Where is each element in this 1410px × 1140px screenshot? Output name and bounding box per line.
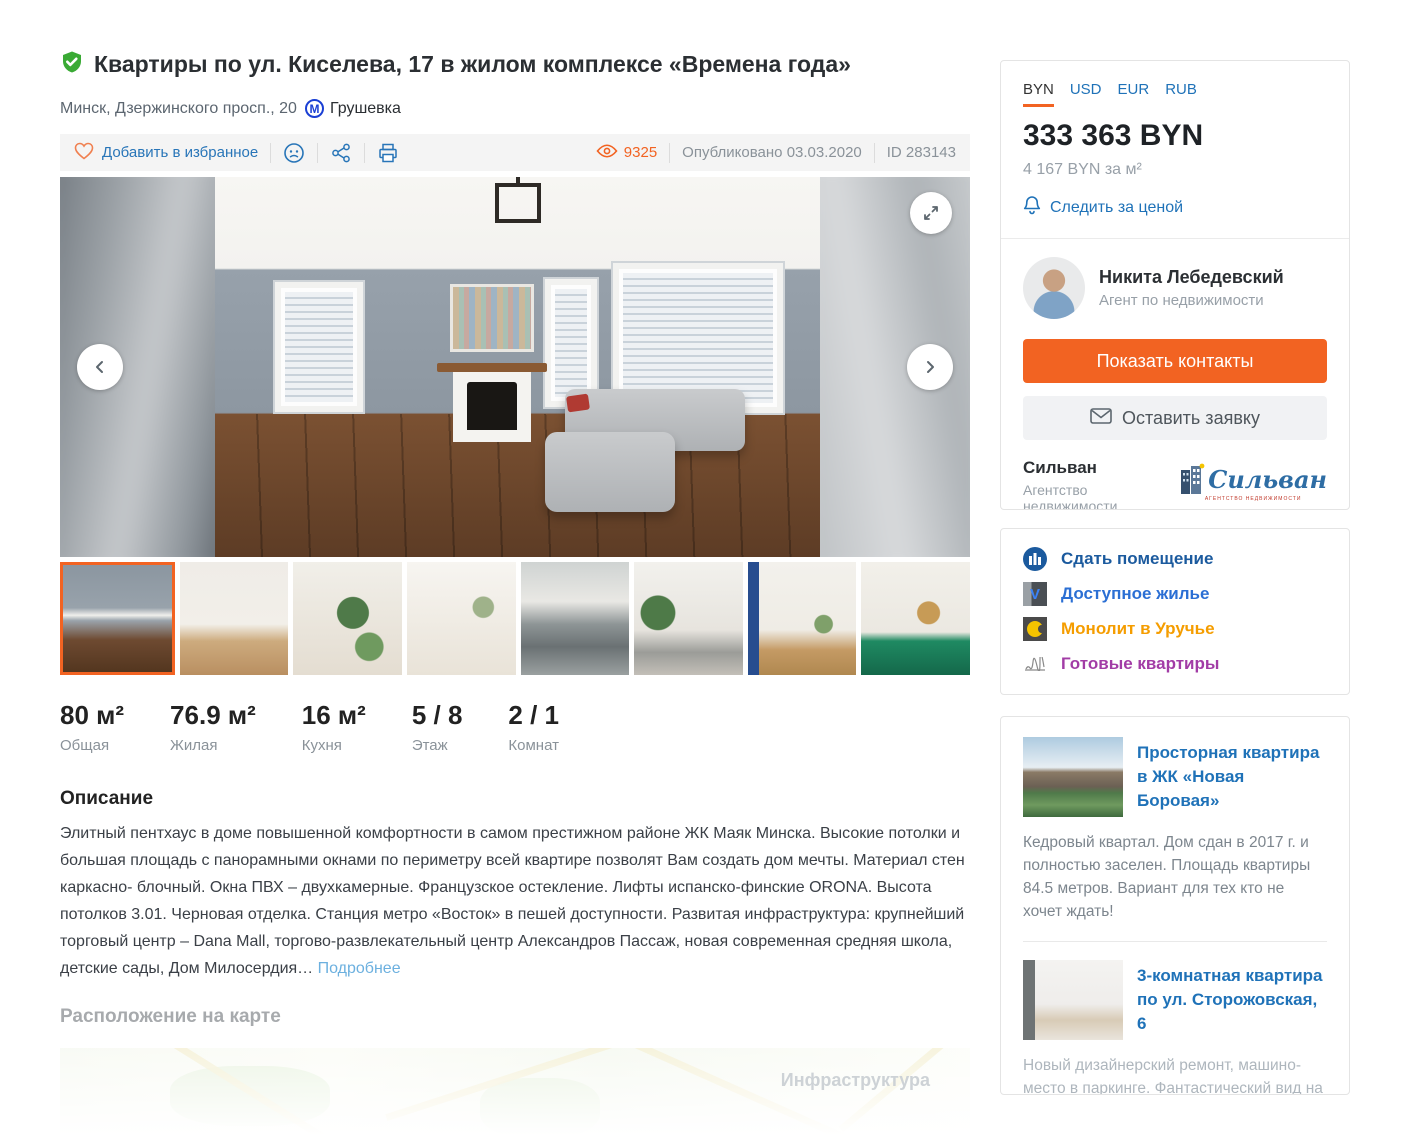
currency-tab-rub[interactable]: RUB — [1165, 81, 1197, 107]
print-button[interactable] — [377, 142, 399, 164]
agency-type: Агентство недвижимости — [1023, 482, 1179, 510]
listing-id: ID 283143 — [887, 144, 956, 161]
add-to-favorites-button[interactable]: Добавить в избранное — [74, 142, 258, 164]
map-infrastructure-label: Инфраструктура — [781, 1070, 930, 1091]
divider — [364, 143, 365, 163]
agency-name: Сильван — [1023, 458, 1179, 478]
listing-page: Квартиры по ул. Киселева, 17 в жилом ком… — [0, 0, 1410, 1140]
stat-rooms: 2 / 1 Комнат — [508, 700, 559, 754]
stat-label: Общая — [60, 737, 124, 754]
related-card-1: Просторная квартира в ЖК «Новая Боровая»… — [1023, 737, 1327, 923]
agency-logo-text: Сильван — [1208, 465, 1327, 494]
eye-icon — [596, 144, 618, 162]
related-listings-panel: Просторная квартира в ЖК «Новая Боровая»… — [1000, 716, 1350, 1095]
agent-role: Агент по недвижимости — [1099, 292, 1284, 309]
related-photo[interactable] — [1023, 960, 1123, 1040]
stat-value: 16 м² — [302, 700, 366, 731]
price-panel: BYN USD EUR RUB 333 363 BYN 4 167 BYN за… — [1000, 60, 1350, 510]
promo-links-panel: Сдать помещение V Доступное жилье Моноли… — [1000, 528, 1350, 695]
divider — [270, 143, 271, 163]
add-to-favorites-label: Добавить в избранное — [102, 144, 258, 161]
views-count: 9325 — [624, 144, 657, 161]
divider — [317, 143, 318, 163]
stat-living-area: 76.9 м² Жилая — [170, 700, 256, 754]
main-photo[interactable] — [215, 177, 820, 557]
currency-tab-usd[interactable]: USD — [1070, 81, 1102, 107]
leave-request-button[interactable]: Оставить заявку — [1023, 396, 1327, 440]
ceiling-lamp — [495, 183, 541, 223]
views-counter: 9325 — [596, 144, 657, 162]
metro-station[interactable]: М Грушевка — [305, 99, 401, 118]
promo-link-ready-apartments[interactable]: Готовые квартиры — [1023, 652, 1327, 676]
stat-value: 76.9 м² — [170, 700, 256, 731]
agent-name: Никита Лебедевский — [1099, 267, 1284, 288]
wall-art — [453, 287, 531, 349]
envelope-icon — [1090, 408, 1112, 429]
agency-logo[interactable]: Сильван агентство недвижимости — [1179, 462, 1327, 502]
published-date: Опубликовано 03.03.2020 — [682, 144, 862, 161]
v-logo-icon: V — [1023, 582, 1047, 606]
location-row: Минск, Дзержинского просп., 20 М Грушевк… — [60, 99, 401, 118]
promo-link-label: Доступное жилье — [1061, 584, 1209, 604]
fireplace — [453, 372, 531, 442]
leave-request-label: Оставить заявку — [1122, 408, 1260, 429]
share-button[interactable] — [330, 142, 352, 164]
address: Минск, Дзержинского просп., 20 — [60, 100, 297, 118]
verified-shield-icon — [60, 50, 84, 79]
yellow-dot-logo-icon — [1023, 617, 1047, 641]
fullscreen-button[interactable] — [910, 192, 952, 234]
description-body: Элитный пентхаус в доме повышенной комфо… — [60, 825, 965, 977]
report-button[interactable] — [283, 142, 305, 164]
stat-label: Жилая — [170, 737, 256, 754]
window-left — [275, 282, 363, 412]
photo-carousel — [60, 177, 970, 557]
thumbnail-strip — [60, 562, 970, 675]
promo-link-label: Монолит в Уручье — [1061, 619, 1215, 639]
map-section-heading: Расположение на карте — [60, 1006, 281, 1028]
divider — [669, 143, 670, 163]
promo-link-label: Готовые квартиры — [1061, 654, 1219, 674]
description-heading: Описание — [60, 788, 153, 810]
sketch-houses-icon — [1023, 652, 1047, 676]
thumbnail-3[interactable] — [293, 562, 402, 675]
map-fade-overlay — [60, 1048, 970, 1140]
stat-label: Кухня — [302, 737, 366, 754]
stat-label: Комнат — [508, 737, 559, 754]
divider — [1023, 941, 1327, 942]
prev-photo-button[interactable] — [77, 344, 123, 390]
related-photo[interactable] — [1023, 737, 1123, 817]
promo-link-rent-out[interactable]: Сдать помещение — [1023, 547, 1327, 571]
key-stats: 80 м² Общая 76.9 м² Жилая 16 м² Кухня 5 … — [60, 700, 559, 754]
red-pillow — [566, 394, 590, 413]
divider — [1001, 238, 1349, 239]
thumbnail-6[interactable] — [634, 562, 743, 675]
related-description: Новый дизайнерский ремонт, машино-место … — [1023, 1054, 1327, 1095]
price-value: 333 363 BYN — [1023, 119, 1327, 153]
metro-icon: М — [305, 99, 324, 118]
window-narrow — [545, 279, 597, 407]
metro-name: Грушевка — [330, 100, 401, 118]
thumbnail-7[interactable] — [748, 562, 857, 675]
promo-link-monolit-uruchye[interactable]: Монолит в Уручье — [1023, 617, 1327, 641]
thumbnail-2[interactable] — [180, 562, 289, 675]
show-contacts-button[interactable]: Показать контакты — [1023, 339, 1327, 383]
thumbnail-4[interactable] — [407, 562, 516, 675]
agent-card: Никита Лебедевский Агент по недвижимости — [1023, 257, 1327, 319]
stat-value: 80 м² — [60, 700, 124, 731]
buildings-circle-icon — [1023, 547, 1047, 571]
currency-tab-eur[interactable]: EUR — [1118, 81, 1150, 107]
stat-value: 5 / 8 — [412, 700, 463, 731]
listing-toolbar: Добавить в избранное 9325 Опу — [60, 134, 970, 171]
read-more-link[interactable]: Подробнее — [318, 960, 401, 977]
watch-price-label: Следить за ценой — [1050, 199, 1183, 217]
watch-price-link[interactable]: Следить за ценой — [1023, 195, 1327, 220]
next-photo-button[interactable] — [907, 344, 953, 390]
stat-kitchen-area: 16 м² Кухня — [302, 700, 366, 754]
bell-icon — [1023, 195, 1041, 220]
currency-tabs: BYN USD EUR RUB — [1023, 81, 1327, 107]
thumbnail-1-selected[interactable] — [60, 562, 175, 675]
description-text: Элитный пентхаус в доме повышенной комфо… — [60, 820, 968, 982]
agency-block: Сильван Агентство недвижимости 165 объяв… — [1023, 458, 1327, 510]
stat-total-area: 80 м² Общая — [60, 700, 124, 754]
related-card-2: 3-комнатная квартира по ул. Сторожовская… — [1023, 960, 1327, 1095]
sofa-chaise — [545, 432, 675, 512]
related-title-link[interactable]: 3-комнатная квартира по ул. Сторожовская… — [1137, 964, 1327, 1036]
thumbnail-8[interactable] — [861, 562, 970, 675]
page-title: Квартиры по ул. Киселева, 17 в жилом ком… — [94, 51, 851, 78]
promo-link-affordable-housing[interactable]: V Доступное жилье — [1023, 582, 1327, 606]
currency-tab-byn[interactable]: BYN — [1023, 81, 1054, 107]
mantel-shelf — [437, 363, 547, 372]
agency-logo-buildings-icon — [1179, 462, 1205, 496]
thumbnail-5[interactable] — [521, 562, 630, 675]
stat-label: Этаж — [412, 737, 463, 754]
page-title-row: Квартиры по ул. Киселева, 17 в жилом ком… — [60, 50, 851, 79]
related-description: Кедровый квартал. Дом сдан в 2017 г. и п… — [1023, 831, 1327, 923]
agent-avatar — [1023, 257, 1085, 319]
price-per-m2: 4 167 BYN за м² — [1023, 161, 1327, 179]
stat-value: 2 / 1 — [508, 700, 559, 731]
stat-floor: 5 / 8 Этаж — [412, 700, 463, 754]
heart-icon — [74, 142, 94, 164]
promo-link-label: Сдать помещение — [1061, 549, 1213, 569]
divider — [874, 143, 875, 163]
map-preview[interactable]: Инфраструктура — [60, 1048, 970, 1140]
related-title-link[interactable]: Просторная квартира в ЖК «Новая Боровая» — [1137, 741, 1327, 813]
agency-logo-caption: агентство недвижимости — [1179, 496, 1327, 502]
